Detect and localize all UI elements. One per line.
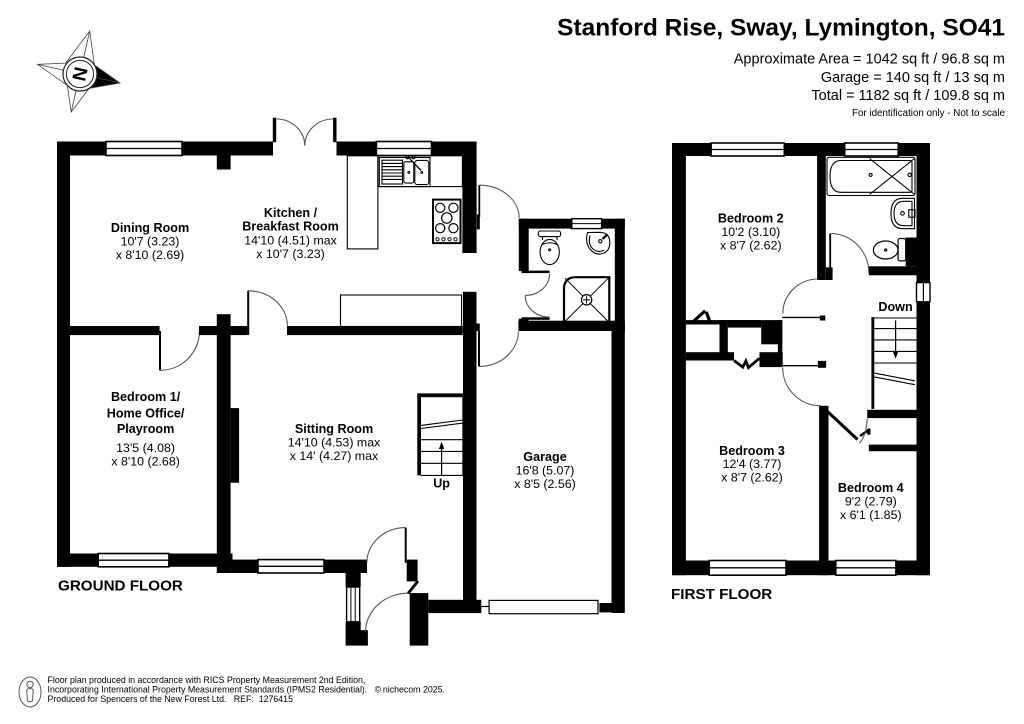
svg-text:Bedroom 3: Bedroom 3: [719, 444, 785, 458]
svg-text:Approximate Area = 1042 sq ft: Approximate Area = 1042 sq ft / 96.8 sq …: [734, 52, 1005, 68]
svg-text:Up: Up: [433, 477, 450, 491]
svg-text:Dining Room: Dining Room: [111, 221, 189, 235]
svg-text:x 8'7 (2.62): x 8'7 (2.62): [721, 471, 783, 485]
svg-text:Breakfast Room: Breakfast Room: [242, 219, 339, 233]
svg-text:x 6'1 (1.85): x 6'1 (1.85): [840, 508, 902, 522]
svg-text:x 8'5 (2.56): x 8'5 (2.56): [514, 477, 576, 491]
svg-text:10'7 (3.23): 10'7 (3.23): [121, 235, 180, 249]
svg-text:Sitting Room: Sitting Room: [295, 422, 373, 436]
svg-text:13'5 (4.08): 13'5 (4.08): [116, 441, 175, 455]
svg-text:9'2 (2.79): 9'2 (2.79): [845, 495, 897, 509]
svg-text:x 8'10 (2.69): x 8'10 (2.69): [116, 248, 185, 262]
svg-text:12'4 (3.77): 12'4 (3.77): [723, 457, 782, 471]
svg-text:10'2 (3.10): 10'2 (3.10): [721, 225, 780, 239]
svg-text:Playroom: Playroom: [117, 422, 174, 436]
svg-text:Down: Down: [878, 300, 912, 314]
svg-text:x 8'7 (2.62): x 8'7 (2.62): [720, 238, 782, 252]
svg-text:FIRST FLOOR: FIRST FLOOR: [671, 586, 772, 603]
svg-text:Bedroom 2: Bedroom 2: [718, 212, 784, 226]
svg-text:x 14' (4.27) max: x 14' (4.27) max: [290, 449, 379, 463]
svg-text:Garage = 140 sq ft / 13 sq m: Garage = 140 sq ft / 13 sq m: [821, 70, 1005, 86]
svg-text:Incorporating International Pr: Incorporating International Property Mea…: [48, 685, 445, 695]
svg-text:Kitchen /: Kitchen /: [264, 206, 318, 220]
svg-text:Total = 1182 sq ft / 109.8 sq: Total = 1182 sq ft / 109.8 sq m: [811, 88, 1005, 104]
svg-text:Produced for Spencers of the N: Produced for Spencers of the New Forest …: [48, 694, 294, 704]
svg-text:Garage: Garage: [523, 450, 566, 464]
svg-text:x 8'10 (2.68): x 8'10 (2.68): [111, 454, 180, 468]
svg-text:Floor plan produced in accorda: Floor plan produced in accordance with R…: [48, 675, 366, 685]
svg-text:GROUND FLOOR: GROUND FLOOR: [58, 578, 183, 595]
svg-text:x 10'7 (3.23): x 10'7 (3.23): [256, 247, 325, 261]
svg-text:14'10 (4.51) max: 14'10 (4.51) max: [244, 234, 337, 248]
svg-text:16'8 (5.07): 16'8 (5.07): [516, 463, 575, 477]
svg-text:14'10 (4.53) max: 14'10 (4.53) max: [288, 436, 381, 450]
svg-text:Home Office/: Home Office/: [107, 406, 185, 420]
svg-text:Bedroom 4: Bedroom 4: [838, 481, 904, 495]
svg-text:Bedroom 1/: Bedroom 1/: [111, 390, 181, 404]
svg-text:For identification only - Not: For identification only - Not to scale: [852, 108, 1006, 119]
svg-text:Stanford Rise, Sway, Lymington: Stanford Rise, Sway, Lymington, SO41: [557, 15, 1005, 42]
